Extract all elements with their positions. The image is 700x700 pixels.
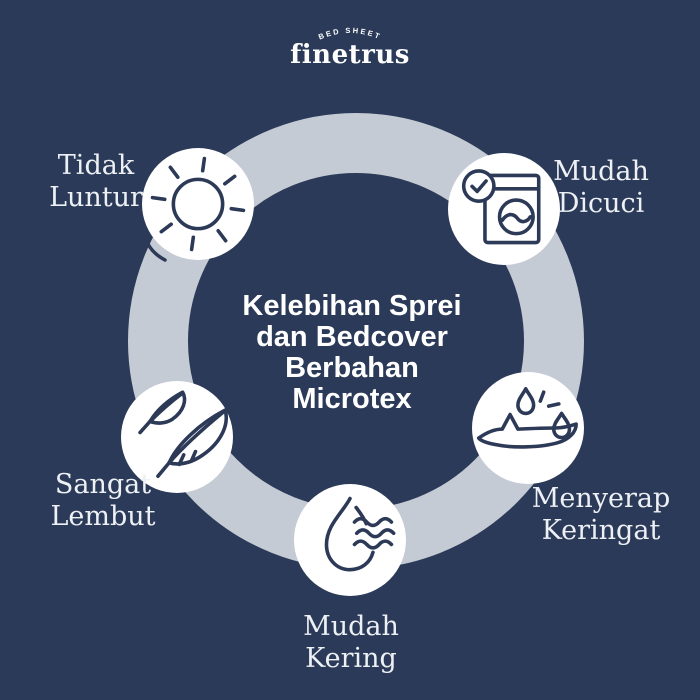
label-sangat-lembut: Sangat Lembut — [23, 469, 183, 533]
node-menyerap-keringat — [472, 372, 584, 484]
infographic: BED SHEET finetrus Kelebihan Sprei dan B… — [0, 0, 700, 700]
sweat-absorb-icon — [472, 372, 584, 484]
diagram-title: Kelebihan Sprei dan Bedcover Berbahan Mi… — [206, 291, 498, 415]
node-mudah-kering — [294, 484, 406, 596]
label-menyerap-keringat: Menyerap Keringat — [506, 483, 696, 547]
label-tidak-luntur: Tidak Luntur — [16, 150, 176, 214]
label-mudah-kering: Mudah Kering — [271, 611, 431, 675]
label-mudah-dicuci: Mudah Dicuci — [521, 156, 681, 220]
water-drop-wind-icon — [294, 484, 406, 596]
